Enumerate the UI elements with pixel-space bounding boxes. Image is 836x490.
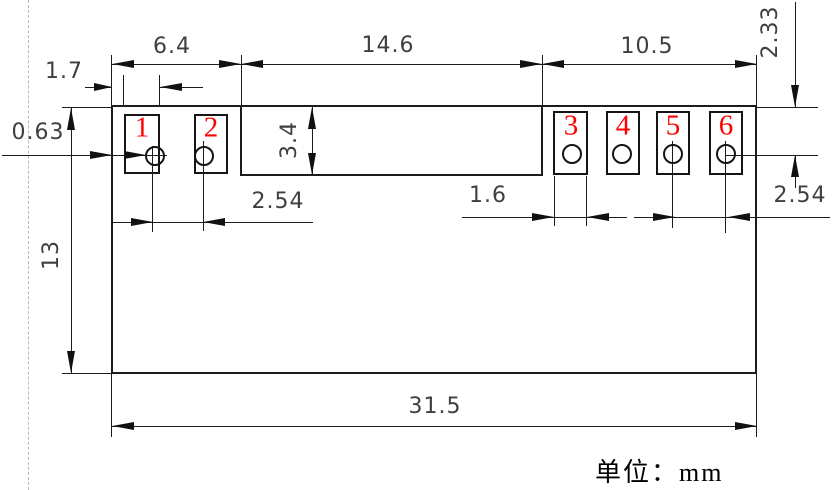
- pad-1-hole: [145, 146, 165, 166]
- pad-1-number: 1: [135, 114, 150, 143]
- arrowhead: [791, 85, 799, 107]
- notch-bottom-edge: [240, 174, 543, 176]
- pad-6-number: 6: [719, 112, 734, 141]
- arrowhead: [542, 60, 564, 68]
- arrowhead: [160, 83, 182, 91]
- arrowhead: [735, 60, 757, 68]
- arrowhead: [124, 151, 146, 159]
- dim-edge-gap: 0.63: [12, 122, 65, 144]
- bottom-edge-extension-left: [62, 373, 112, 374]
- pad-3-number: 3: [564, 112, 579, 141]
- arrowhead: [203, 218, 225, 226]
- body-top-edge: [112, 105, 757, 107]
- pad1-right-tick: [159, 75, 160, 107]
- arrowhead: [67, 351, 75, 373]
- arrowhead: [308, 107, 316, 129]
- top-dimension-line: [112, 64, 757, 65]
- pad6-center-extension: [726, 155, 818, 156]
- dim-13-line: [71, 108, 72, 373]
- notch-left-edge: [240, 105, 242, 176]
- body-bottom-edge: [112, 372, 757, 374]
- dim-hole-offset-top: 2.33: [760, 6, 782, 59]
- pad-2-number: 2: [204, 114, 219, 143]
- pad3-left-extension: [554, 176, 555, 226]
- dashed-guide-line: [28, 0, 29, 490]
- arrowhead: [728, 213, 750, 221]
- pad1-left-tick: [123, 75, 124, 107]
- dim-notch-depth: 3.4: [279, 121, 301, 159]
- arrowhead: [131, 218, 153, 226]
- notch-right-edge: [541, 105, 543, 176]
- arrowhead: [308, 153, 316, 175]
- dim-pad-width-right: 1.6: [469, 185, 507, 207]
- pad-2-hole: [194, 146, 214, 166]
- arrowhead: [112, 60, 134, 68]
- arrowhead: [90, 151, 112, 159]
- arrowhead: [791, 155, 799, 177]
- body-left-edge: [111, 105, 113, 374]
- arrowhead: [653, 213, 675, 221]
- pad-3-hole: [562, 144, 582, 164]
- dim-body-height: 13: [41, 240, 63, 270]
- pad-5-hole: [663, 144, 683, 164]
- arrowhead: [219, 60, 241, 68]
- arrowhead: [67, 108, 75, 130]
- arrowhead: [587, 213, 609, 221]
- pad-5-number: 5: [666, 112, 681, 141]
- arrowhead: [112, 422, 134, 430]
- dim-top-right-width: 10.5: [621, 36, 674, 58]
- dim-top-left-width: 6.4: [153, 36, 191, 58]
- arrowhead: [532, 213, 554, 221]
- pad-6-hole: [716, 144, 736, 164]
- pcb-footprint-drawing: 1 2 3 4 5 6 6.4 14.6 10.5 1.7 0.63 3.4 2…: [0, 0, 836, 490]
- arrowhead: [241, 60, 263, 68]
- arrowhead: [520, 60, 542, 68]
- overall-width-dim-line: [112, 426, 757, 427]
- pad-4-hole: [612, 144, 632, 164]
- top-edge-extension-right: [757, 107, 818, 108]
- dim-pitch-right: 2.54: [774, 185, 827, 207]
- dim-top-middle-width: 14.6: [362, 35, 415, 57]
- dim-pitch-left: 2.54: [252, 191, 305, 213]
- arrowhead: [735, 422, 757, 430]
- arrowhead: [94, 83, 112, 91]
- dim-overall-width: 31.5: [409, 396, 462, 418]
- pad-4-number: 4: [616, 112, 631, 141]
- body-right-edge: [755, 105, 757, 374]
- dim-pad-width-left: 1.7: [45, 61, 83, 83]
- units-note: 单位：mm: [595, 452, 723, 489]
